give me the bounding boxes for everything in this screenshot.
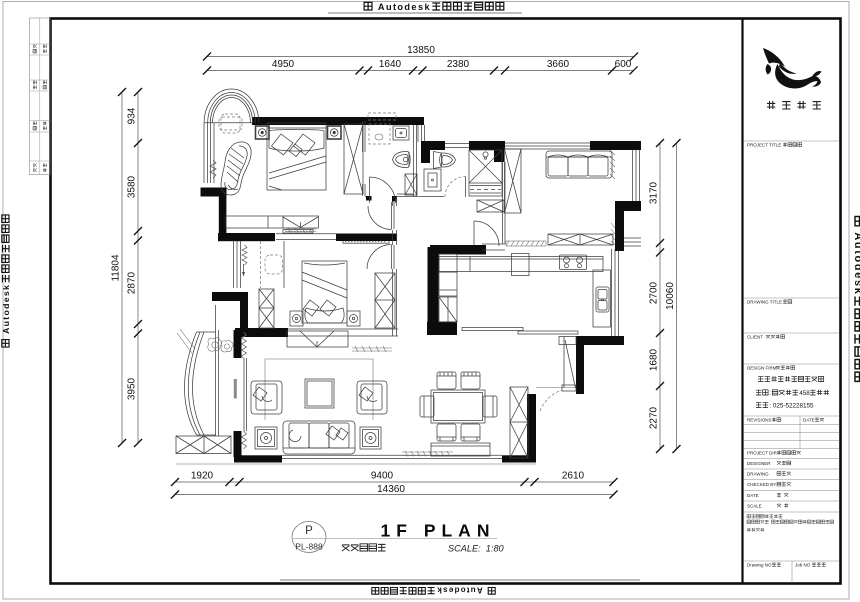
svg-text:REVISIONS: REVISIONS xyxy=(747,418,772,423)
svg-text:3170: 3170 xyxy=(649,181,660,204)
svg-text:DRAWING: DRAWING xyxy=(747,471,769,476)
svg-text:1680: 1680 xyxy=(649,348,660,371)
svg-text:2700: 2700 xyxy=(649,281,660,304)
svg-text:4950: 4950 xyxy=(272,59,295,70)
svg-text:SCALE: SCALE xyxy=(747,503,762,508)
svg-text:PROJECT DIR: PROJECT DIR xyxy=(747,451,778,456)
svg-text:DESIGNER: DESIGNER xyxy=(747,461,771,466)
svg-text:Autodesk: Autodesk xyxy=(1,284,11,334)
svg-text:PROJECT TITLE: PROJECT TITLE xyxy=(747,143,781,148)
svg-text:DATE: DATE xyxy=(803,418,815,423)
svg-text:PL-888: PL-888 xyxy=(295,542,323,552)
svg-text:458: 458 xyxy=(799,390,810,397)
svg-text:P: P xyxy=(305,525,313,537)
svg-text::: : xyxy=(769,390,771,397)
svg-text:Job NO: Job NO xyxy=(795,563,811,568)
svg-text:3580: 3580 xyxy=(127,175,138,198)
svg-text:Drawing NO: Drawing NO xyxy=(747,563,772,568)
svg-text:DRAWING TITLE: DRAWING TITLE xyxy=(747,300,782,305)
svg-text:1F PLAN: 1F PLAN xyxy=(381,521,496,541)
svg-text:1640: 1640 xyxy=(379,59,402,70)
svg-text:CLIENT: CLIENT xyxy=(747,335,763,340)
svg-text:Autodesk: Autodesk xyxy=(378,2,431,12)
svg-text:3660: 3660 xyxy=(547,59,570,70)
svg-text:10060: 10060 xyxy=(665,282,676,310)
svg-text:3950: 3950 xyxy=(127,377,138,400)
svg-text:600: 600 xyxy=(615,59,632,70)
svg-text:Autodesk: Autodesk xyxy=(436,586,482,595)
svg-text:CHECKED BY: CHECKED BY xyxy=(747,482,776,487)
svg-text:2380: 2380 xyxy=(447,59,470,70)
svg-text:11804: 11804 xyxy=(111,254,122,282)
svg-text:: 025-52228155: : 025-52228155 xyxy=(769,403,814,410)
svg-text:SCALE: 1:80: SCALE: 1:80 xyxy=(448,544,505,554)
svg-text:934: 934 xyxy=(127,107,138,124)
svg-text:1920: 1920 xyxy=(191,471,214,482)
svg-text:DESIGN FIRM: DESIGN FIRM xyxy=(747,366,777,371)
svg-text:14360: 14360 xyxy=(377,484,405,495)
svg-text:DATE: DATE xyxy=(747,493,759,498)
svg-text:2270: 2270 xyxy=(649,406,660,429)
svg-text:2870: 2870 xyxy=(127,271,138,294)
svg-text:9400: 9400 xyxy=(371,471,394,482)
svg-text:2610: 2610 xyxy=(562,471,585,482)
svg-text:Autodesk: Autodesk xyxy=(852,232,860,295)
svg-text:13850: 13850 xyxy=(407,45,435,56)
